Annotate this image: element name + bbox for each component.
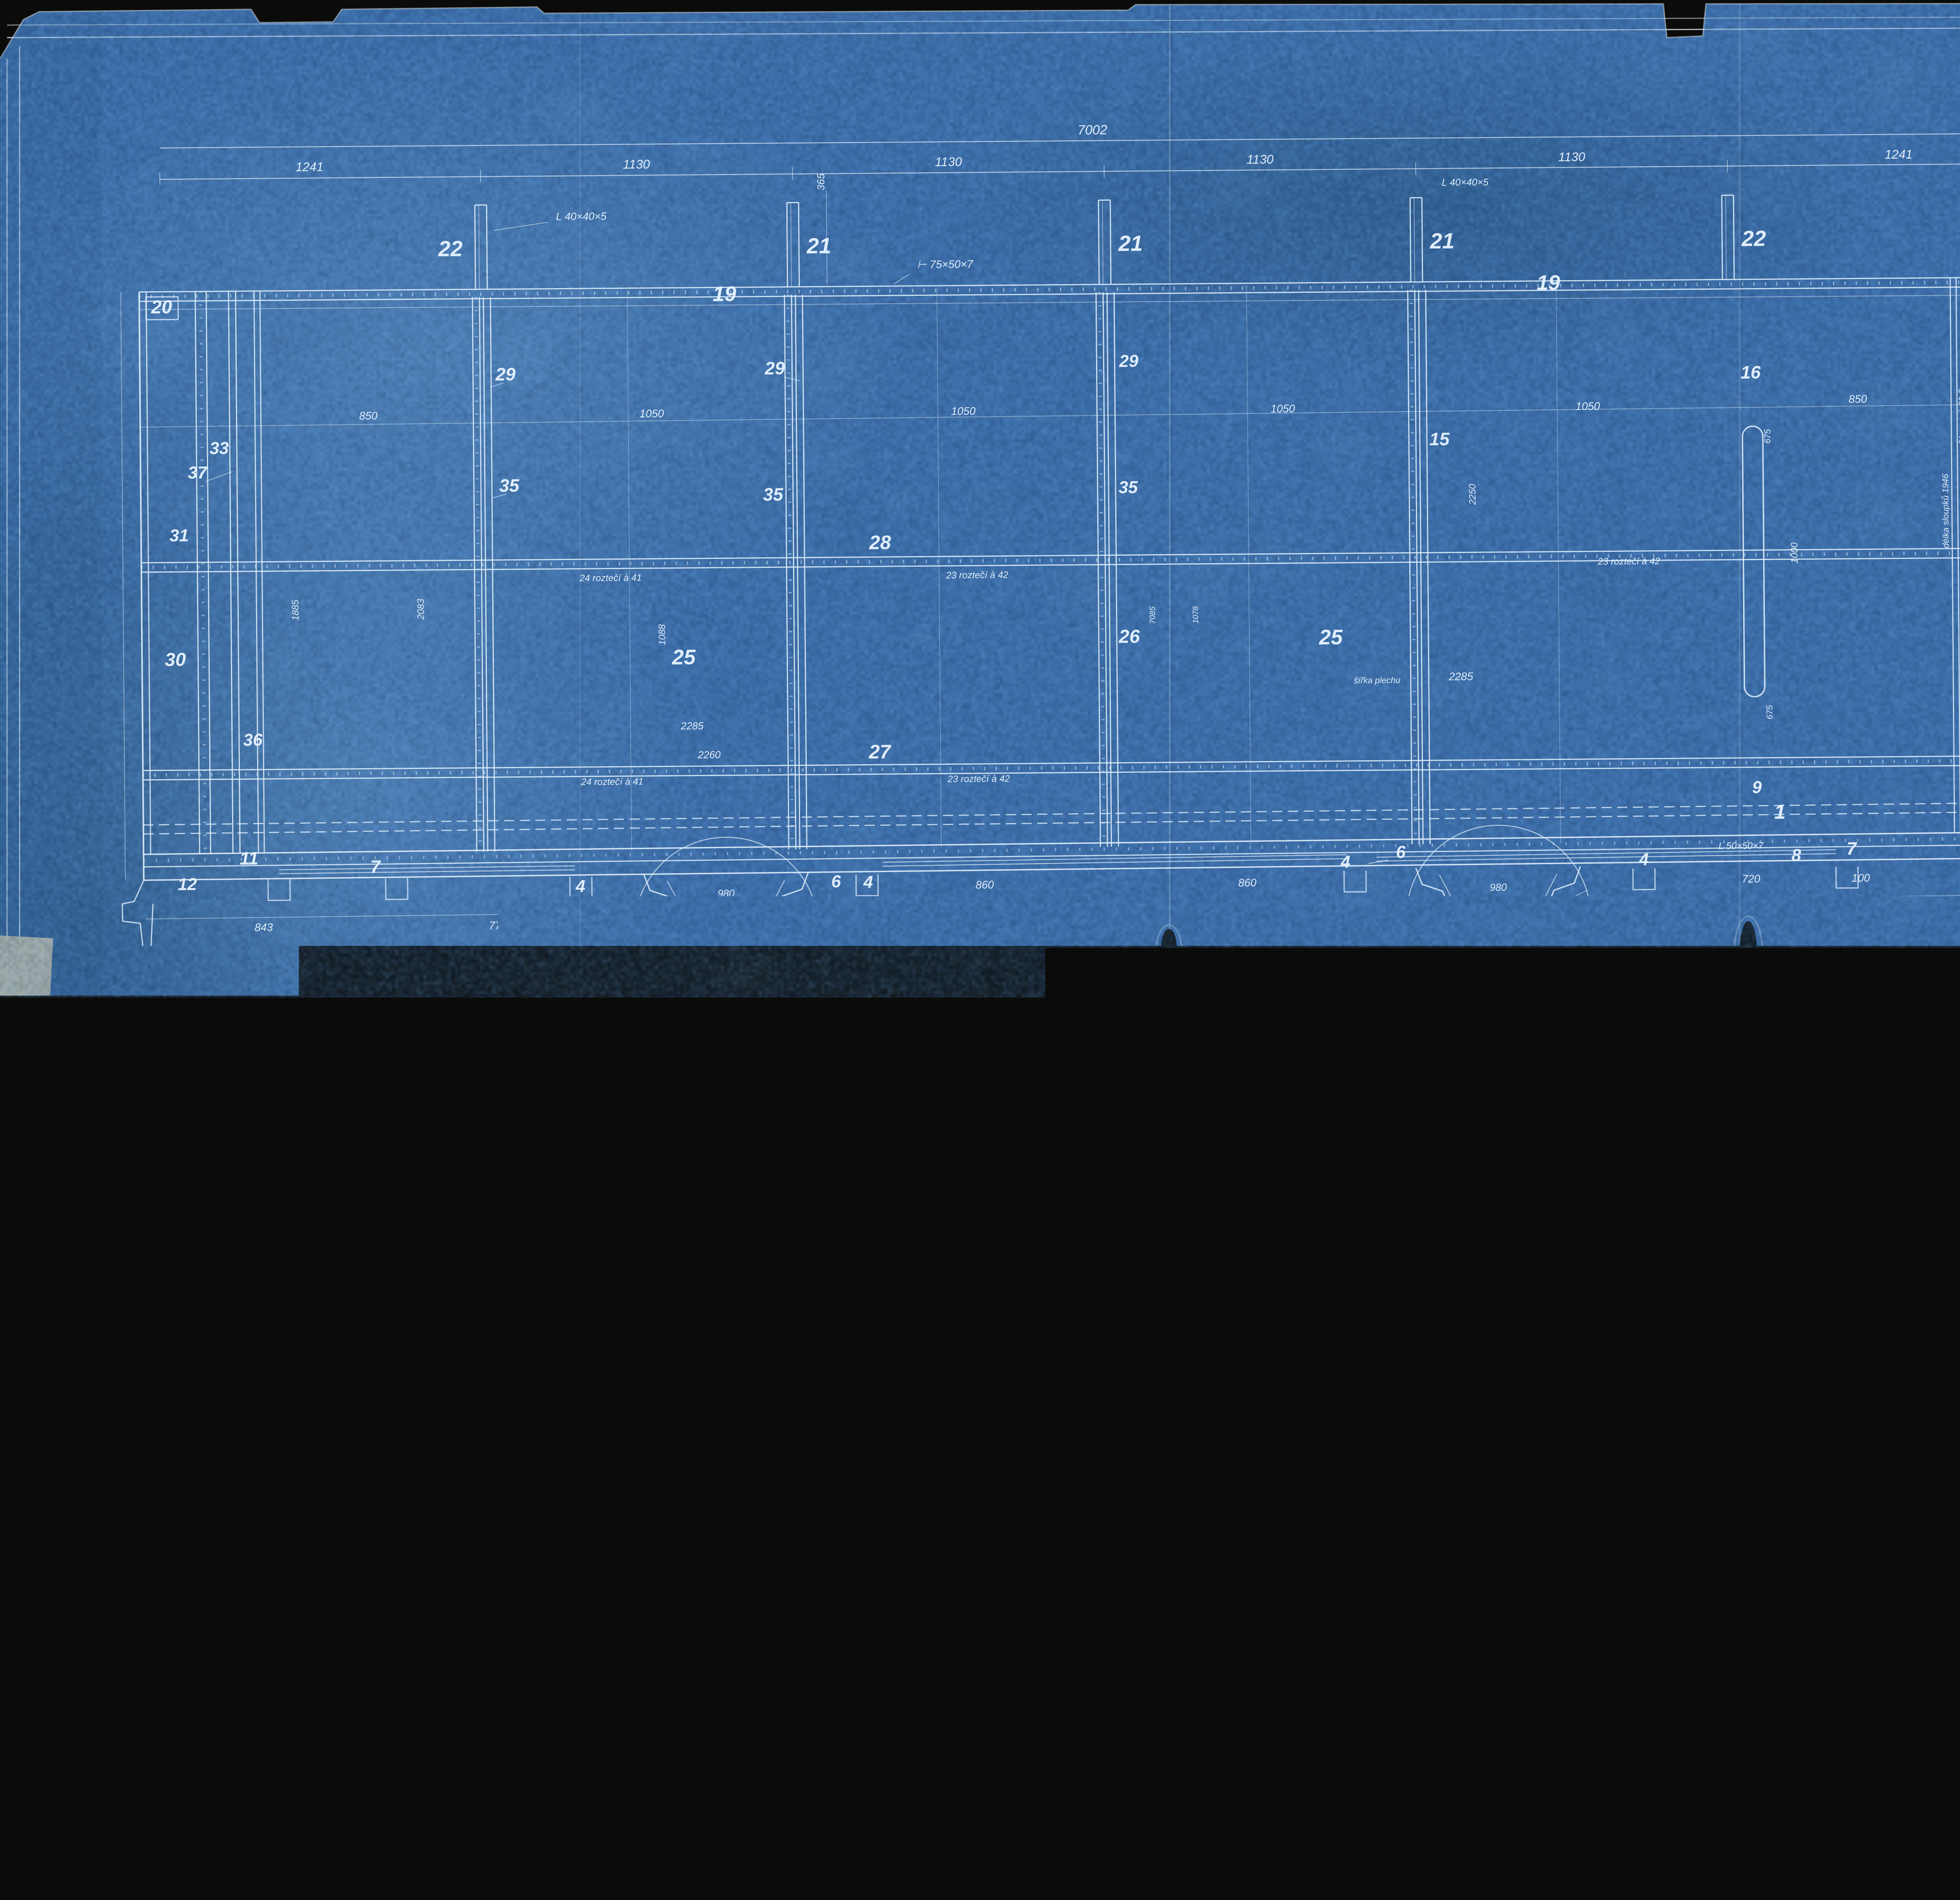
svg-text:8: 8 bbox=[1791, 846, 1801, 865]
svg-text:1130: 1130 bbox=[935, 1137, 959, 1149]
svg-text:574·5: 574·5 bbox=[104, 1224, 123, 1251]
svg-text:2099: 2099 bbox=[1034, 1458, 1045, 1480]
svg-text:22: 22 bbox=[1680, 1197, 1703, 1219]
svg-text:1241: 1241 bbox=[1885, 147, 1913, 161]
svg-text:1078: 1078 bbox=[1191, 606, 1200, 624]
svg-text:407: 407 bbox=[990, 1625, 1007, 1637]
svg-text:6: 6 bbox=[831, 872, 841, 891]
svg-text:L 60×45×6: L 60×45×6 bbox=[1247, 1397, 1296, 1409]
svg-text:550: 550 bbox=[711, 1510, 722, 1526]
svg-text:12: 12 bbox=[178, 875, 197, 894]
svg-text:1: 1 bbox=[1247, 1574, 1257, 1594]
svg-text:2260: 2260 bbox=[697, 749, 721, 760]
svg-text:35: 35 bbox=[1118, 478, 1138, 497]
svg-text:31: 31 bbox=[169, 526, 189, 545]
svg-text:91: 91 bbox=[731, 948, 740, 957]
svg-text:5/16″: 5/16″ bbox=[1787, 1153, 1809, 1164]
svg-text:23 roztečí à 42: 23 roztečí à 42 bbox=[947, 774, 1010, 785]
svg-text:22: 22 bbox=[438, 236, 463, 261]
svg-text:22: 22 bbox=[1741, 226, 1766, 250]
svg-text:30: 30 bbox=[76, 1501, 96, 1520]
svg-text:r·80: r·80 bbox=[238, 1151, 254, 1161]
svg-text:40: 40 bbox=[1827, 1107, 1840, 1120]
svg-text:17: 17 bbox=[154, 1537, 175, 1557]
svg-text:šířka plechu: šířka plechu bbox=[1354, 675, 1400, 685]
svg-text:6: 6 bbox=[1396, 843, 1406, 862]
svg-text:35: 35 bbox=[763, 484, 784, 504]
svg-text:1: 1 bbox=[501, 1595, 512, 1616]
svg-text:625: 625 bbox=[727, 905, 746, 921]
svg-text:⊏ 100×50×6′5: ⊏ 100×50×6′5 bbox=[558, 1660, 618, 1671]
svg-text:⊏ 100×50×6·5: ⊏ 100×50×6·5 bbox=[1839, 1508, 1900, 1519]
svg-text:26: 26 bbox=[1124, 1734, 1142, 1751]
svg-text:7: 7 bbox=[370, 856, 381, 877]
svg-text:850: 850 bbox=[1849, 393, 1867, 405]
svg-text:2103: 2103 bbox=[1777, 1024, 1803, 1037]
svg-text:200: 200 bbox=[1918, 1594, 1935, 1612]
svg-text:15: 15 bbox=[1156, 1734, 1174, 1751]
svg-text:980: 980 bbox=[1490, 881, 1507, 893]
svg-text:7: 7 bbox=[362, 1396, 374, 1419]
svg-text:35: 35 bbox=[499, 475, 520, 495]
svg-text:1600: 1600 bbox=[587, 1461, 597, 1482]
svg-text:25: 25 bbox=[1075, 1733, 1093, 1750]
svg-text:4: 4 bbox=[862, 1389, 873, 1411]
svg-text:980: 980 bbox=[1260, 1500, 1280, 1513]
svg-text:29: 29 bbox=[495, 364, 516, 384]
svg-text:2117: 2117 bbox=[106, 1456, 117, 1477]
svg-text:L 50×50×7: L 50×50×7 bbox=[1719, 840, 1764, 851]
svg-text:3: 3 bbox=[98, 1506, 108, 1525]
svg-text:⊏ 100×50×6·3: ⊏ 100×50×6·3 bbox=[1732, 1358, 1799, 1371]
svg-text:2: 2 bbox=[1205, 1715, 1216, 1736]
svg-text:653: 653 bbox=[1618, 1618, 1635, 1630]
svg-text:6: 6 bbox=[1840, 1625, 1850, 1644]
svg-text:r·120: r·120 bbox=[162, 1313, 180, 1322]
svg-text:podélně: podélně bbox=[1795, 930, 1832, 943]
svg-text:L 50×50·7: L 50×50·7 bbox=[651, 1528, 691, 1563]
svg-text:19: 19 bbox=[1537, 271, 1561, 295]
svg-text:2285: 2285 bbox=[681, 720, 704, 732]
svg-text:vůle ložiska v rozsochách : ke: vůle ložiska v rozsochách : ke středu vo… bbox=[1563, 926, 1754, 940]
svg-text:6988: 6988 bbox=[1146, 1479, 1169, 1491]
svg-text:168: 168 bbox=[875, 1631, 885, 1646]
svg-text:4600: 4600 bbox=[1109, 1757, 1136, 1770]
svg-text:2103: 2103 bbox=[447, 1040, 474, 1053]
svg-text:100: 100 bbox=[1851, 872, 1870, 884]
svg-text:36: 36 bbox=[243, 731, 263, 750]
svg-text:délka sloupků 1946: délka sloupků 1946 bbox=[1940, 473, 1951, 548]
svg-text:4: 4 bbox=[1357, 1394, 1369, 1417]
svg-text:21: 21 bbox=[1123, 1200, 1147, 1222]
svg-text:33: 33 bbox=[209, 439, 229, 458]
svg-text:23 roztečí à 42: 23 roztečí à 42 bbox=[946, 570, 1008, 581]
svg-text:555: 555 bbox=[217, 971, 227, 987]
svg-text:⊢ 75×50×7: ⊢ 75×50×7 bbox=[917, 258, 973, 270]
svg-text:1130: 1130 bbox=[1558, 150, 1585, 164]
svg-text:16: 16 bbox=[1697, 1735, 1715, 1752]
svg-text:26: 26 bbox=[1118, 626, 1140, 647]
svg-text:4: 4 bbox=[575, 877, 586, 896]
svg-text:7002: 7002 bbox=[1078, 123, 1107, 138]
svg-text:850: 850 bbox=[353, 1764, 372, 1777]
svg-text:⊏ 100×50×6·5: ⊏ 100×50×6·5 bbox=[1298, 1652, 1360, 1663]
svg-text:7: 7 bbox=[1857, 1389, 1869, 1411]
svg-text:1885: 1885 bbox=[290, 599, 301, 620]
svg-text:7006: 7006 bbox=[1112, 1787, 1138, 1800]
svg-text:770: 770 bbox=[489, 919, 507, 932]
svg-text:15: 15 bbox=[799, 1733, 816, 1750]
svg-text:11: 11 bbox=[234, 1709, 252, 1728]
svg-text:21: 21 bbox=[1370, 1198, 1394, 1221]
svg-text:L 45×45⁄5: L 45×45⁄5 bbox=[681, 1397, 691, 1435]
svg-text:⊏ 100×50×6·5: ⊏ 100×50×6·5 bbox=[411, 1380, 478, 1392]
svg-text:21: 21 bbox=[747, 1202, 770, 1224]
svg-text:1050: 1050 bbox=[639, 407, 664, 419]
svg-text:naproti 2113: naproti 2113 bbox=[54, 1436, 64, 1484]
svg-text:4: 4 bbox=[1642, 1393, 1653, 1416]
svg-text:675: 675 bbox=[1762, 429, 1772, 444]
svg-text:1484: 1484 bbox=[1218, 1403, 1228, 1423]
svg-text:2083: 2083 bbox=[416, 598, 426, 620]
svg-text:28: 28 bbox=[869, 531, 891, 553]
svg-text:1000: 1000 bbox=[1789, 542, 1800, 563]
svg-text:1130: 1130 bbox=[1241, 1135, 1265, 1148]
svg-text:351: 351 bbox=[171, 1116, 190, 1129]
svg-text:15: 15 bbox=[1432, 1735, 1450, 1752]
svg-text:653: 653 bbox=[1804, 1648, 1821, 1660]
svg-text:634: 634 bbox=[160, 1211, 178, 1231]
svg-text:860: 860 bbox=[1238, 877, 1256, 889]
svg-text:23 roztečí à 42: 23 roztečí à 42 bbox=[1597, 556, 1660, 567]
svg-text:24 roztečí à 41: 24 roztečí à 41 bbox=[579, 573, 642, 584]
svg-text:770: 770 bbox=[1725, 1502, 1748, 1525]
svg-text:964: 964 bbox=[128, 1419, 138, 1434]
svg-text:2010: 2010 bbox=[1187, 1421, 1196, 1441]
svg-text:2250: 2250 bbox=[1467, 484, 1478, 505]
svg-text:Číslo výkresu :: Číslo výkresu : bbox=[136, 1869, 265, 1891]
svg-text:⌗ 100×50×6·5: ⌗ 100×50×6·5 bbox=[1859, 1672, 1918, 1683]
svg-text:L 40×40×5: L 40×40×5 bbox=[288, 1659, 333, 1670]
svg-text:1130: 1130 bbox=[623, 157, 650, 172]
svg-text:7/III. 24.: 7/III. 24. bbox=[361, 1878, 409, 1893]
svg-text:407: 407 bbox=[1356, 1622, 1374, 1633]
svg-text:843: 843 bbox=[254, 921, 273, 933]
svg-text:21: 21 bbox=[1118, 231, 1143, 256]
svg-text:675: 675 bbox=[1764, 705, 1774, 720]
svg-text:2020: 2020 bbox=[1168, 1419, 1178, 1439]
svg-text:1088: 1088 bbox=[657, 624, 668, 645]
svg-text:21 rozt. à 39·5: 21 rozt. à 39·5 bbox=[1957, 389, 1960, 445]
svg-text:30: 30 bbox=[165, 649, 186, 670]
svg-text:4: 4 bbox=[863, 872, 873, 892]
svg-text:2113: 2113 bbox=[83, 1456, 93, 1476]
svg-text:138: 138 bbox=[1210, 1423, 1219, 1436]
svg-text:1100: 1100 bbox=[917, 1467, 927, 1487]
svg-text:4: 4 bbox=[586, 1398, 598, 1421]
svg-text:2200: 2200 bbox=[806, 1358, 816, 1379]
svg-text:843: 843 bbox=[1786, 1495, 1806, 1508]
svg-text:850: 850 bbox=[343, 1115, 363, 1128]
svg-text:8: 8 bbox=[1392, 904, 1402, 923]
svg-text:455: 455 bbox=[920, 1661, 931, 1677]
svg-text:770: 770 bbox=[488, 1512, 512, 1535]
svg-text:35783: 35783 bbox=[290, 1868, 353, 1893]
svg-text:1: 1 bbox=[499, 1287, 510, 1307]
svg-text:12: 12 bbox=[179, 1405, 199, 1425]
svg-text:příčně: příčně bbox=[1796, 950, 1825, 962]
svg-text:29: 29 bbox=[764, 358, 785, 378]
svg-text:21: 21 bbox=[806, 233, 831, 258]
svg-text:vrut ⊥ 7/50: vrut ⊥ 7/50 bbox=[1891, 1151, 1939, 1162]
svg-text:L 40×40×5: L 40×40×5 bbox=[1442, 177, 1488, 188]
svg-text:29: 29 bbox=[1119, 352, 1139, 371]
svg-text:138: 138 bbox=[1225, 1423, 1233, 1436]
svg-text:⊏ 100×50×6·5: ⊏ 100×50×6·5 bbox=[971, 1329, 1038, 1342]
svg-text:22: 22 bbox=[440, 1203, 463, 1226]
svg-text:4: 4 bbox=[1340, 852, 1350, 872]
svg-text:850: 850 bbox=[1777, 1133, 1795, 1145]
svg-text:720: 720 bbox=[1742, 873, 1760, 885]
svg-text:22 roztečí à 37: 22 roztečí à 37 bbox=[123, 1338, 132, 1390]
svg-text:25: 25 bbox=[671, 645, 696, 669]
svg-text:19: 19 bbox=[713, 282, 737, 306]
svg-text:292: 292 bbox=[1719, 1596, 1728, 1611]
svg-text:24 roztečí à 41: 24 roztečí à 41 bbox=[581, 776, 643, 787]
svg-text:27: 27 bbox=[868, 741, 891, 763]
svg-text:353: 353 bbox=[175, 1793, 193, 1805]
svg-text:9: 9 bbox=[1752, 778, 1762, 797]
svg-text:850: 850 bbox=[359, 410, 377, 422]
svg-text:9: 9 bbox=[1721, 1627, 1731, 1647]
svg-text:6: 6 bbox=[369, 1679, 379, 1700]
svg-text:2285: 2285 bbox=[1448, 670, 1474, 682]
svg-text:1241: 1241 bbox=[296, 160, 323, 174]
svg-text:1: 1 bbox=[1774, 801, 1786, 823]
svg-text:Ringhofferovy závody a sp. Smí: Ringhofferovy závody a sp. Smíchov. bbox=[91, 1840, 439, 1863]
svg-text:2800: 2800 bbox=[1105, 1034, 1132, 1047]
svg-text:365: 365 bbox=[815, 173, 827, 190]
svg-text:15: 15 bbox=[1429, 429, 1450, 449]
svg-text:⌗ 100×50×6·5: ⌗ 100×50×6·5 bbox=[965, 1665, 1024, 1676]
svg-text:2: 2 bbox=[459, 1720, 469, 1739]
svg-text:578: 578 bbox=[1173, 948, 1183, 965]
svg-text:980: 980 bbox=[813, 1506, 833, 1519]
svg-text:5: 5 bbox=[1193, 1445, 1205, 1468]
svg-text:653: 653 bbox=[844, 1627, 861, 1639]
svg-text:843: 843 bbox=[418, 1511, 438, 1524]
svg-text:1130: 1130 bbox=[631, 1139, 655, 1151]
svg-text:9: 9 bbox=[500, 1675, 510, 1696]
svg-text:163: 163 bbox=[1036, 1654, 1045, 1667]
svg-text:18: 18 bbox=[238, 1732, 255, 1750]
svg-text:7085: 7085 bbox=[1148, 606, 1157, 624]
svg-text:860: 860 bbox=[975, 879, 994, 891]
svg-text:4: 4 bbox=[1639, 850, 1649, 869]
svg-text:1: 1 bbox=[1247, 1276, 1257, 1296]
svg-text:7002: 7002 bbox=[1106, 1092, 1132, 1105]
svg-text:1130: 1130 bbox=[1247, 152, 1274, 167]
svg-text:1050: 1050 bbox=[951, 405, 976, 417]
svg-text:678: 678 bbox=[263, 959, 274, 975]
svg-text:25: 25 bbox=[1319, 625, 1343, 649]
svg-text:1050: 1050 bbox=[1575, 400, 1600, 412]
svg-text:11: 11 bbox=[1924, 1622, 1943, 1642]
svg-text:2103: 2103 bbox=[1241, 1421, 1250, 1440]
svg-text:163: 163 bbox=[659, 1634, 669, 1649]
svg-text:1130: 1130 bbox=[935, 155, 962, 169]
svg-text:L 40×40×5: L 40×40×5 bbox=[556, 210, 607, 223]
svg-text:21: 21 bbox=[1430, 228, 1455, 253]
svg-text:910: 910 bbox=[1041, 1503, 1061, 1516]
svg-text:91: 91 bbox=[1504, 942, 1512, 951]
svg-text:L 40×60: L 40×60 bbox=[183, 1633, 218, 1644]
svg-text:980: 980 bbox=[717, 887, 735, 899]
svg-text:89: 89 bbox=[713, 948, 722, 957]
svg-text:168: 168 bbox=[1223, 1650, 1232, 1662]
svg-text:250: 250 bbox=[1837, 1610, 1847, 1625]
svg-text:860: 860 bbox=[672, 918, 690, 930]
svg-text:1130: 1130 bbox=[1548, 1134, 1572, 1146]
svg-text:8: 8 bbox=[434, 1391, 445, 1414]
svg-text:553: 553 bbox=[603, 1629, 620, 1641]
svg-text:4600: 4600 bbox=[1098, 1111, 1124, 1124]
svg-text:11: 11 bbox=[240, 848, 258, 868]
svg-text:20: 20 bbox=[151, 297, 172, 317]
svg-text:8: 8 bbox=[1713, 1513, 1725, 1536]
svg-text:89: 89 bbox=[1486, 942, 1494, 951]
svg-text:16: 16 bbox=[1740, 362, 1761, 383]
svg-text:37: 37 bbox=[188, 463, 208, 482]
svg-text:7: 7 bbox=[198, 1648, 203, 1656]
svg-text:7: 7 bbox=[1846, 838, 1857, 859]
